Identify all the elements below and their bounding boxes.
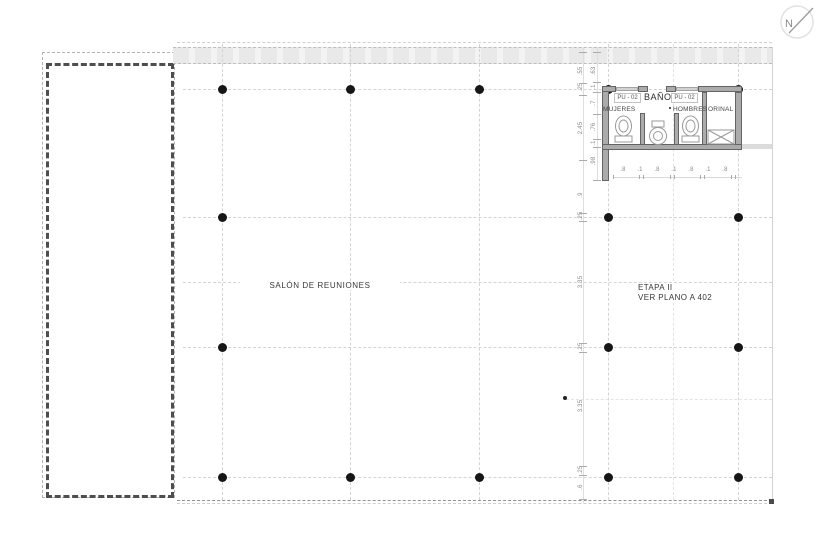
dimension-tick (579, 343, 587, 344)
dimension-tick (593, 52, 601, 53)
etapa-label: ETAPA II VER PLANO A 402 (638, 283, 712, 303)
label-bullet (669, 107, 671, 109)
dimension-tick (579, 221, 587, 222)
column-dot (734, 213, 743, 222)
column-dot (218, 213, 227, 222)
door-tag-left: PU - 02 (614, 93, 641, 103)
column-dot (604, 473, 613, 482)
dashed-outline-dark (46, 63, 174, 498)
dimension-label: .25 (577, 332, 585, 362)
dimension-tick (700, 175, 701, 179)
column-dot (604, 213, 613, 222)
bathroom-title: BAÑO (644, 92, 672, 103)
column-dot (346, 473, 355, 482)
dimension-tick (579, 95, 587, 96)
dimension-tick (579, 352, 587, 353)
dimension-label: 3.35 (577, 391, 585, 421)
dimension-tick (579, 466, 587, 467)
dimension-label: .25 (577, 201, 585, 231)
plan-bottom-edge-line2 (177, 503, 772, 504)
column-dot (604, 343, 613, 352)
room-label-orinal: ORINAL (708, 106, 733, 114)
toilet-tank-men (682, 136, 699, 142)
column-dot (346, 85, 355, 94)
column-dot (218, 343, 227, 352)
dimension-tick (613, 175, 614, 179)
column-dot (734, 343, 743, 352)
toilet-tank-women (615, 136, 632, 142)
dimension-tick (579, 213, 587, 214)
column-dot (734, 473, 743, 482)
dimension-label: .8 (710, 166, 740, 174)
gridline-partial (566, 399, 772, 400)
etapa-line2: VER PLANO A 402 (638, 293, 712, 303)
gridline-col-a (222, 44, 223, 500)
plan-top-edge-line (177, 42, 772, 43)
gridline-row-2 (183, 217, 772, 218)
dimension-tick (643, 175, 644, 179)
salon-label: SALÓN DE REUNIONES (240, 281, 400, 290)
etapa-line1: ETAPA II (638, 283, 712, 293)
floor-plan-canvas: N .55.252.45.9.253.35.253.35.25.6.63.1.7… (0, 0, 821, 550)
column-dot (218, 85, 227, 94)
dimension-label: 3.35 (577, 267, 585, 297)
dimension-label: .98 (590, 146, 598, 176)
north-arrow: N (779, 4, 817, 42)
corner-marker (769, 499, 774, 504)
gridline-col-b (350, 44, 351, 500)
dimension-tick (579, 52, 587, 53)
dimension-tick (579, 160, 587, 161)
dimension-label: 2.45 (577, 113, 585, 143)
plan-bottom-edge-line (177, 500, 772, 501)
bathroom-fixtures (600, 80, 760, 160)
dimension-tick (704, 175, 705, 179)
sink-counter (652, 121, 664, 127)
column-dot (475, 85, 484, 94)
dimension-tick (579, 499, 587, 500)
north-label: N (785, 18, 793, 30)
dimension-tick (579, 475, 587, 476)
dimension-tick (639, 175, 640, 179)
dimension-label: .25 (577, 72, 585, 102)
room-label-hombres: HOMBRES (673, 106, 707, 114)
dimension-tick (670, 175, 671, 179)
sink-basin (650, 128, 667, 145)
dimension-label: .6 (577, 472, 585, 502)
bathroom-dimension-line (613, 177, 742, 178)
door-tag-right: PU - 02 (671, 93, 698, 103)
column-dot (218, 473, 227, 482)
dimension-tick (579, 83, 587, 84)
room-label-mujeres: MUJERES (603, 106, 635, 114)
gridline-row-3 (183, 347, 772, 348)
toilet-bowl-women (616, 116, 632, 136)
gridline-col-c (479, 44, 480, 500)
dimension-tick (735, 175, 736, 179)
reference-point (563, 396, 567, 400)
plan-top-wall-band (173, 47, 772, 64)
plan-right-edge-line (772, 47, 773, 503)
column-dot (475, 473, 484, 482)
toilet-bowl-men (683, 116, 699, 136)
dimension-tick (593, 180, 601, 181)
dimension-tick (674, 175, 675, 179)
dimension-tick (731, 175, 732, 179)
